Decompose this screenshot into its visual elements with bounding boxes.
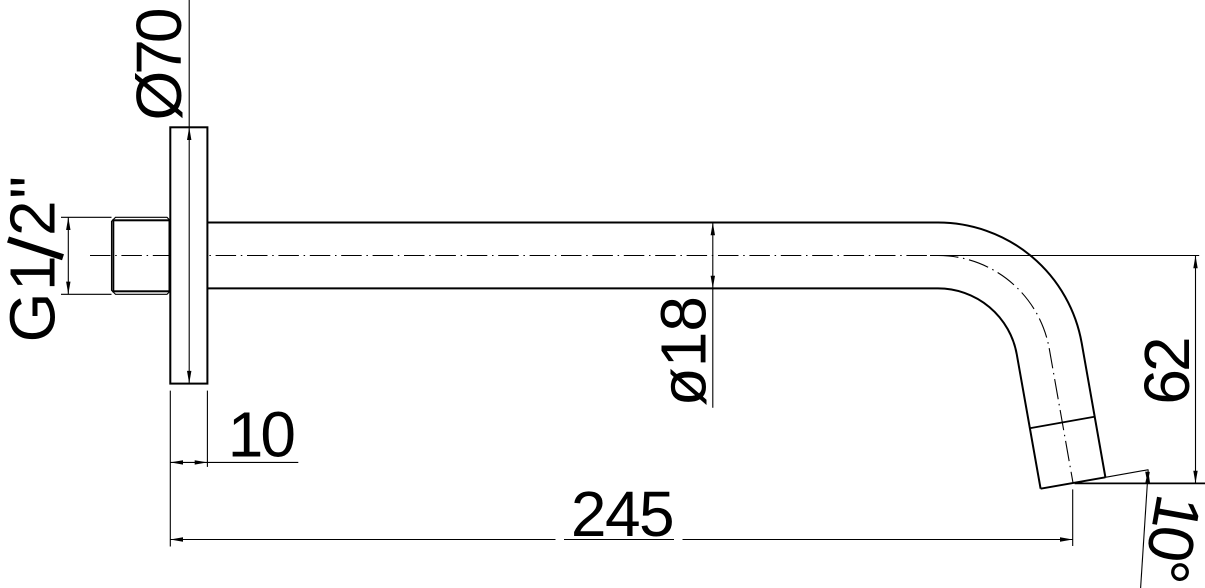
svg-text:62: 62 <box>1131 339 1203 405</box>
svg-text:ø18: ø18 <box>648 296 720 406</box>
svg-text:10: 10 <box>228 399 295 471</box>
svg-text:G1: G1 <box>0 254 68 343</box>
svg-text:245: 245 <box>571 478 673 550</box>
svg-text:Ø70: Ø70 <box>123 9 195 120</box>
svg-text:2": 2" <box>0 174 68 236</box>
